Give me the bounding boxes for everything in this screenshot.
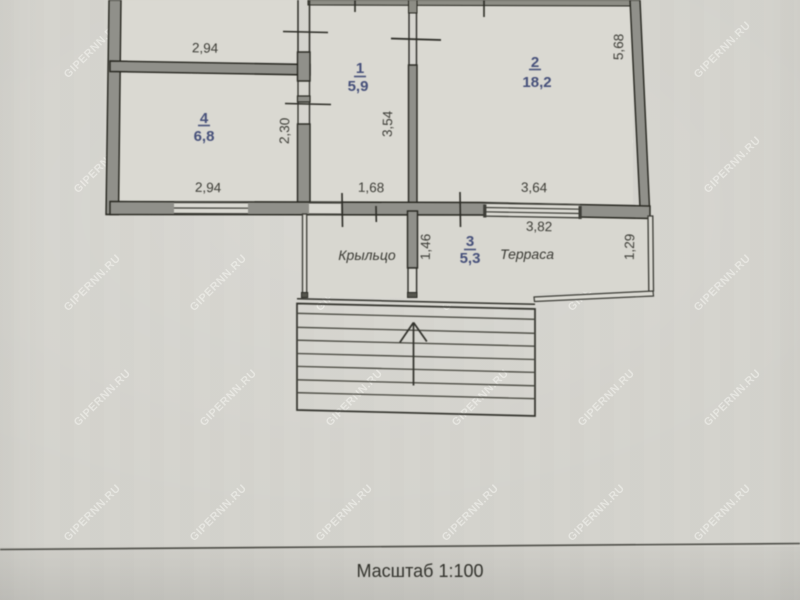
svg-text:1,46: 1,46 xyxy=(418,234,434,261)
svg-text:2: 2 xyxy=(531,54,539,71)
svg-text:Крыльцо: Крыльцо xyxy=(338,247,396,263)
svg-text:3,54: 3,54 xyxy=(380,110,396,137)
svg-text:2,94: 2,94 xyxy=(195,180,222,196)
svg-text:Терраса: Терраса xyxy=(500,246,554,262)
svg-text:5,9: 5,9 xyxy=(348,78,369,95)
svg-text:1,68: 1,68 xyxy=(358,180,385,196)
svg-text:5,68: 5,68 xyxy=(611,34,627,61)
svg-text:Масштаб 1:100: Масштаб 1:100 xyxy=(356,561,483,581)
svg-text:3: 3 xyxy=(466,233,474,250)
svg-text:2,30: 2,30 xyxy=(277,118,293,145)
svg-text:3,64: 3,64 xyxy=(521,180,548,196)
svg-text:2,94: 2,94 xyxy=(192,40,219,56)
svg-text:4: 4 xyxy=(200,110,209,127)
svg-text:1: 1 xyxy=(356,60,364,77)
svg-text:5,3: 5,3 xyxy=(460,250,481,267)
svg-text:18,2: 18,2 xyxy=(522,74,551,91)
svg-text:3,82: 3,82 xyxy=(526,219,553,235)
svg-text:6,8: 6,8 xyxy=(194,128,215,145)
svg-text:1,29: 1,29 xyxy=(622,234,638,261)
